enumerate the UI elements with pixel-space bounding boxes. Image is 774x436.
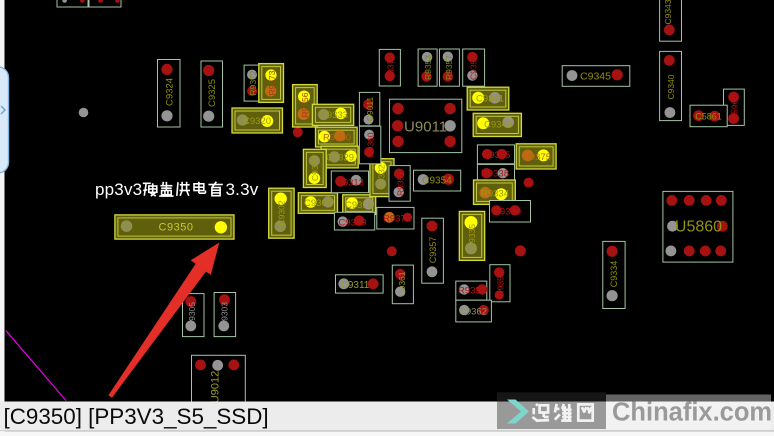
svg-text:R9371: R9371: [386, 55, 396, 80]
svg-text:C9300: C9300: [304, 198, 332, 209]
svg-text:R9360: R9360: [366, 132, 376, 157]
svg-text:C9335: C9335: [467, 224, 477, 249]
svg-text:U9011: U9011: [404, 119, 447, 136]
svg-text:Chinafix.com: Chinafix.com: [612, 399, 772, 427]
svg-text:[C9350] [PP3V3_S5_SSD]: [C9350] [PP3V3_S5_SSD]: [4, 404, 269, 429]
svg-text:3.3v: 3.3v: [226, 180, 259, 199]
svg-text:C9320: C9320: [243, 116, 271, 127]
svg-text:R5960: R5960: [730, 95, 740, 120]
svg-text:R9356: R9356: [300, 92, 310, 117]
svg-text:C9305: C9305: [187, 302, 197, 327]
svg-text:C9354: C9354: [422, 176, 452, 187]
svg-text:C5861: C5861: [695, 112, 722, 122]
svg-text:R9330: R9330: [493, 207, 521, 218]
svg-text:C9313: C9313: [336, 178, 364, 189]
svg-text:C9358: C9358: [469, 55, 479, 80]
svg-text:pp3v3: pp3v3: [95, 180, 142, 199]
svg-text:C9332: C9332: [377, 164, 387, 189]
svg-text:C9345: C9345: [580, 71, 611, 83]
svg-text:R9385: R9385: [483, 150, 511, 161]
svg-text:U5860: U5860: [675, 219, 722, 236]
svg-text:C9359: C9359: [339, 218, 367, 229]
svg-text:C9324: C9324: [165, 78, 176, 106]
svg-text:R9351: R9351: [458, 286, 486, 297]
svg-text:C9336: C9336: [310, 156, 320, 181]
svg-text:C9361: C9361: [397, 271, 407, 296]
svg-text:C9329: C9329: [326, 153, 354, 164]
svg-text:R9375: R9375: [523, 152, 551, 163]
svg-text:C9333: C9333: [320, 110, 348, 121]
svg-text:R9353: R9353: [423, 55, 433, 80]
svg-text:C9362: C9362: [459, 307, 487, 318]
svg-text:C9334: C9334: [609, 261, 619, 288]
svg-text:C9348: C9348: [484, 120, 512, 131]
svg-text:C9341: C9341: [476, 94, 504, 105]
svg-text:R9355: R9355: [396, 171, 406, 196]
svg-text:R9334: R9334: [481, 189, 509, 200]
svg-text:R9338: R9338: [481, 169, 509, 180]
svg-text:C9343: C9343: [663, 0, 673, 25]
svg-text:C9350: C9350: [159, 222, 194, 234]
svg-text:R9350: R9350: [496, 271, 506, 296]
svg-text:C9325: C9325: [207, 79, 218, 107]
svg-text:C9011: C9011: [365, 97, 375, 122]
svg-text:C9311: C9311: [341, 280, 370, 291]
svg-text:R9357: R9357: [444, 55, 454, 80]
svg-text:R9372: R9372: [248, 70, 258, 95]
svg-text:C9303: C9303: [220, 302, 230, 327]
svg-text:R9373: R9373: [267, 70, 277, 95]
svg-text:R9376: R9376: [383, 214, 411, 225]
svg-text:R9360: R9360: [323, 133, 351, 144]
svg-text:C9302: C9302: [277, 200, 287, 225]
svg-text:C9318: C9318: [345, 200, 373, 211]
svg-text:C9357: C9357: [428, 237, 438, 264]
svg-text:C9340: C9340: [666, 74, 676, 99]
svg-text:U9012: U9012: [210, 371, 222, 403]
